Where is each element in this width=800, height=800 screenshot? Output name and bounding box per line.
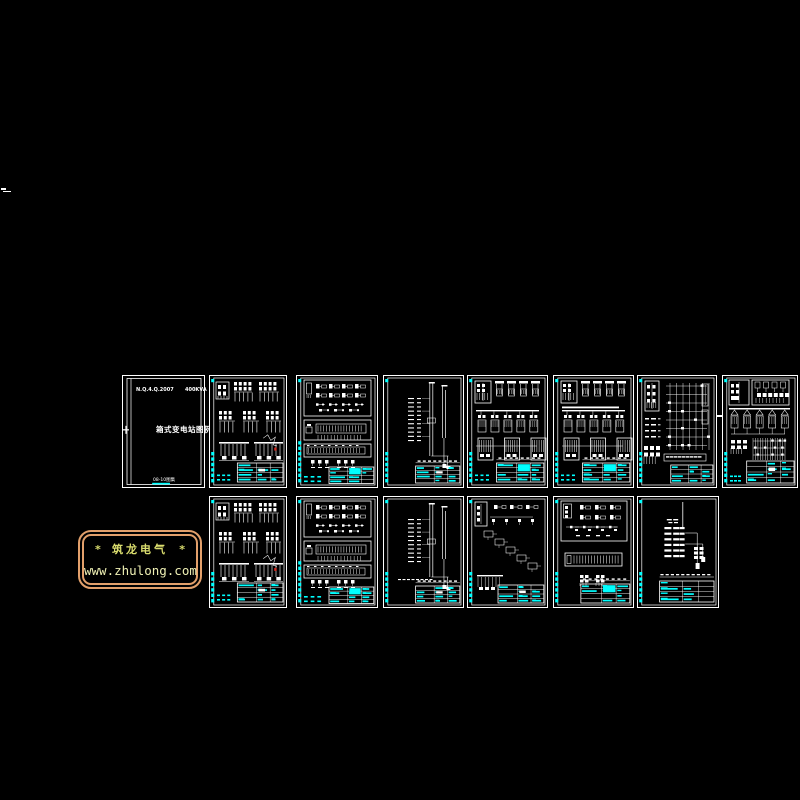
sheet-graphics [554,497,633,607]
drawing-sheet-09[interactable] [209,496,287,608]
drawing-sheet-07[interactable] [637,375,717,488]
cover-code-left: N.Q.4.Q.2007 [136,388,174,393]
drawing-sheet-04[interactable] [383,375,464,488]
sheet-graphics [297,376,377,487]
sheet-graphics [210,376,286,487]
cover-title: 箱式变电站图例 [156,426,212,434]
sheet-graphics [638,376,716,487]
sheet-graphics [554,376,633,487]
sheet-graphics [384,376,463,487]
logo-title-row: * 筑龙电气 * [84,541,196,557]
drawing-sheet-10[interactable] [296,496,378,608]
logo-star-right: * [179,543,185,556]
drawing-sheet-11[interactable] [383,496,464,608]
drawing-sheet-03[interactable] [296,375,378,488]
drawing-sheet-05[interactable] [467,375,548,488]
sheet-graphics [723,376,797,487]
sheet-graphics [210,497,286,607]
zhulong-logo-border: * 筑龙电气 * www.zhulong.com [82,534,198,585]
logo-title: 筑龙电气 [112,541,168,557]
sheet-graphics [297,497,377,607]
drawing-sheet-01[interactable]: N.Q.4.Q.2007400KVA箱式变电站图例08-10图集 [122,375,205,488]
drawing-sheet-13[interactable] [553,496,634,608]
drawing-sheet-08[interactable] [722,375,798,488]
sheet-graphics [638,497,718,607]
stray-artifact-mark [1,188,11,192]
sheet-graphics [468,376,547,487]
drawing-sheet-14[interactable] [637,496,719,608]
cover-footer: 08-10图集 [153,479,175,484]
zhulong-watermark-logo: * 筑龙电气 * www.zhulong.com [78,530,202,589]
cover-code-right: 400KVA [185,388,207,393]
logo-url: www.zhulong.com [84,563,196,578]
sheet-graphics [384,497,463,607]
logo-star-left: * [95,543,101,556]
drawing-sheet-02[interactable] [209,375,287,488]
drawing-sheet-12[interactable] [467,496,548,608]
drawing-sheet-06[interactable] [553,375,634,488]
sheet-graphics [468,497,547,607]
